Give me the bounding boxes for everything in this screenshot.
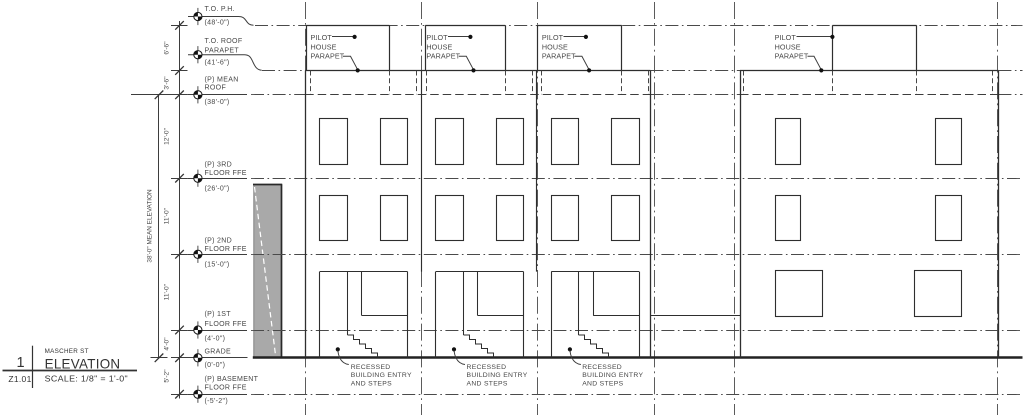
svg-text:PARAPET: PARAPET [311,51,345,60]
svg-text:HOUSE: HOUSE [775,42,801,51]
svg-text:(0'-0"): (0'-0") [205,362,226,369]
svg-text:T.O. P.H.: T.O. P.H. [205,6,235,13]
svg-text:(-5'-2"): (-5'-2") [205,398,228,405]
svg-text:FLOOR FFE: FLOOR FFE [205,170,247,177]
svg-text:ROOF: ROOF [205,85,227,92]
svg-text:5'-2": 5'-2" [163,369,170,383]
svg-text:(15'-0"): (15'-0") [205,261,230,268]
svg-text:RECESSED: RECESSED [467,364,507,371]
svg-text:6'-6": 6'-6" [163,41,170,55]
svg-text:3'-6": 3'-6" [163,76,170,90]
svg-text:T.O. ROOF: T.O. ROOF [205,38,243,45]
svg-text:PARAPET: PARAPET [426,51,460,60]
svg-text:(4'-0"): (4'-0") [205,336,226,343]
svg-text:(48'-0"): (48'-0") [205,20,230,27]
svg-text:FLOOR FFE: FLOOR FFE [205,321,247,328]
svg-text:(P) 2ND: (P) 2ND [205,237,233,244]
svg-text:Z1.01: Z1.01 [8,374,31,384]
svg-text:11'-0": 11'-0" [163,283,170,300]
svg-text:FLOOR FFE: FLOOR FFE [205,246,247,253]
svg-text:1: 1 [17,355,25,371]
svg-text:AND STEPS: AND STEPS [467,381,508,388]
svg-text:AND STEPS: AND STEPS [582,381,623,388]
svg-text:(P) 3RD: (P) 3RD [205,161,233,168]
svg-text:RECESSED: RECESSED [582,364,622,371]
svg-text:PILOT: PILOT [426,33,448,42]
svg-text:HOUSE: HOUSE [542,42,568,51]
svg-text:PILOT: PILOT [775,33,797,42]
svg-text:(P) MEAN: (P) MEAN [205,77,239,84]
svg-text:4'-0": 4'-0" [163,337,170,351]
svg-text:(P) 1ST: (P) 1ST [205,311,232,318]
svg-text:PARAPET: PARAPET [205,47,240,54]
svg-text:PARAPET: PARAPET [542,51,576,60]
svg-text:BUILDING ENTRY: BUILDING ENTRY [351,372,412,379]
svg-text:FLOOR FFE: FLOOR FFE [205,385,247,392]
svg-text:38'-0" MEAN ELEVATION: 38'-0" MEAN ELEVATION [147,189,154,263]
svg-text:AND STEPS: AND STEPS [351,381,392,388]
svg-text:HOUSE: HOUSE [311,42,337,51]
svg-text:12'-0": 12'-0" [163,127,170,144]
svg-text:BUILDING ENTRY: BUILDING ENTRY [582,372,643,379]
svg-text:SCALE: 1/8" = 1'-0": SCALE: 1/8" = 1'-0" [45,374,128,384]
svg-text:MASCHER ST: MASCHER ST [45,348,89,355]
svg-text:RECESSED: RECESSED [351,364,391,371]
svg-text:(26'-0"): (26'-0") [205,185,230,192]
svg-text:PILOT: PILOT [311,33,333,42]
svg-text:11'-0": 11'-0" [163,207,170,224]
svg-text:ELEVATION: ELEVATION [45,355,121,371]
svg-text:(41'-6"): (41'-6") [205,59,230,66]
svg-text:BUILDING ENTRY: BUILDING ENTRY [467,372,528,379]
svg-text:HOUSE: HOUSE [426,42,452,51]
svg-text:(38'-0"): (38'-0") [205,99,230,106]
svg-text:GRADE: GRADE [205,348,232,355]
svg-text:(P) BASEMENT: (P) BASEMENT [205,376,259,383]
svg-text:PARAPET: PARAPET [775,51,809,60]
svg-text:PILOT: PILOT [542,33,564,42]
